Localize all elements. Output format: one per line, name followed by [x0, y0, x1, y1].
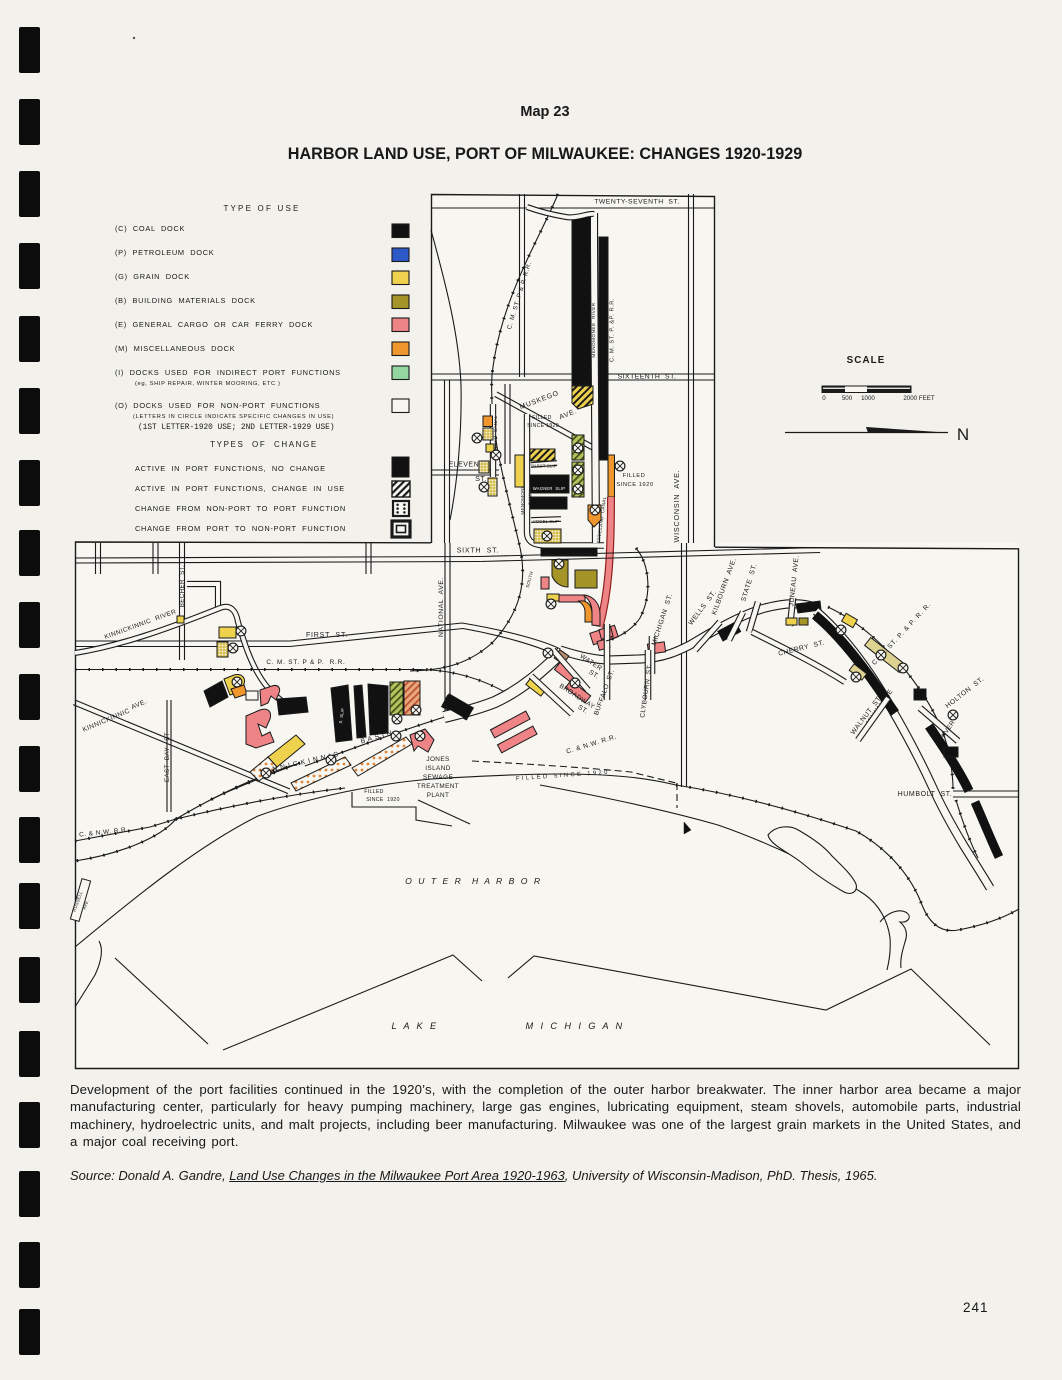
svg-text:VOGEL SLIP: VOGEL SLIP — [533, 519, 560, 524]
svg-text:(I) DOCKS USED FOR INDIREC: (I) DOCKS USED FOR INDIRECT PORT FUNCTIO… — [115, 368, 341, 377]
svg-text:PABST SLIP: PABST SLIP — [531, 464, 557, 469]
svg-text:(E) GENERAL CARGO OR CAR: (E) GENERAL CARGO OR CAR FERRY DOCK — [115, 320, 313, 329]
svg-text:(C) COAL DOCK: (C) COAL DOCK — [115, 224, 185, 233]
svg-text:ACTIVE IN PORT FUNCTIONS,: ACTIVE IN PORT FUNCTIONS, NO CHANGE — [135, 464, 326, 473]
svg-text:TREATMENT: TREATMENT — [417, 783, 459, 790]
svg-text:SINCE 1920: SINCE 1920 — [616, 482, 653, 488]
svg-text:PLANT: PLANT — [427, 792, 450, 799]
svg-text:FILLED: FILLED — [623, 473, 646, 479]
svg-text:FILLED: FILLED — [532, 415, 551, 421]
svg-text:(B) BUILDING MATERIALS DOCK: (B) BUILDING MATERIALS DOCK — [115, 296, 256, 305]
svg-text:NATIONAL AVE.: NATIONAL AVE. — [438, 577, 445, 637]
svg-text:(LETTERS IN CIRCLE INDICATE SP: (LETTERS IN CIRCLE INDICATE SPECIFIC CHA… — [133, 414, 334, 420]
svg-text:CHANGE FROM PORT TO NON-PO: CHANGE FROM PORT TO NON-PORT FUNCTION — [135, 524, 346, 533]
svg-text:WAGNER SLIP: WAGNER SLIP — [533, 486, 566, 491]
svg-text:C. M. ST. P. &P. R.R.: C. M. ST. P. &P. R.R. — [610, 298, 616, 362]
svg-text:(1ST LETTER-1920 USE; 2ND LETT: (1ST LETTER-1920 USE; 2ND LETTER-1929 US… — [138, 424, 335, 432]
svg-text:FILLED: FILLED — [364, 789, 383, 795]
svg-text:SIXTEENTH ST.: SIXTEENTH ST. — [618, 374, 677, 381]
svg-text:N: N — [957, 425, 969, 444]
svg-text:1000: 1000 — [861, 395, 875, 402]
svg-text:MENOMONEE RIVER: MENOMONEE RIVER — [591, 302, 596, 357]
svg-text:SCALE: SCALE — [847, 355, 886, 366]
svg-text:0: 0 — [822, 395, 826, 402]
svg-text:C. M. ST. P & P. R.R.: C. M. ST. P & P. R.R. — [266, 659, 345, 666]
svg-text:(O) DOCKS USED FOR NON-POR: (O) DOCKS USED FOR NON-PORT FUNCTIONS — [115, 401, 320, 410]
svg-text:SINCE 1920: SINCE 1920 — [366, 797, 400, 803]
svg-text:TYPES OF CHANGE: TYPES OF CHANGE — [210, 440, 318, 449]
svg-text:EAST BAY ST: EAST BAY ST — [164, 732, 171, 782]
svg-text:(M) MISCELLANEOUS DOCK: (M) MISCELLANEOUS DOCK — [115, 344, 235, 353]
svg-text:(G) GRAIN DOCK: (G) GRAIN DOCK — [115, 272, 190, 281]
svg-text:ACTIVE IN PORT FUNCTIONS,: ACTIVE IN PORT FUNCTIONS, CHANGE IN USE — [135, 484, 345, 493]
svg-text:ISLAND: ISLAND — [425, 765, 451, 772]
svg-text:TYPE OF USE: TYPE OF USE — [223, 204, 300, 213]
svg-text:(P) PETROLEUM DOCK: (P) PETROLEUM DOCK — [115, 248, 214, 257]
svg-text:M I C H I G A N: M I C H I G A N — [525, 1021, 624, 1031]
svg-text:HUMBOLT ST.: HUMBOLT ST. — [898, 791, 953, 798]
svg-text:SINCE 1920: SINCE 1920 — [527, 423, 559, 429]
svg-text:JONES: JONES — [426, 756, 449, 763]
svg-text:CHANGE FROM NON-PORT TO PO: CHANGE FROM NON-PORT TO PORT FUNCTION — [135, 504, 346, 513]
svg-text:SIXTH ST.: SIXTH ST. — [457, 548, 500, 555]
svg-text:O U T E R: O U T E R — [405, 876, 463, 886]
svg-text:H A R B O R: H A R B O R — [472, 876, 542, 886]
svg-text:TWENTY-SEVENTH ST.: TWENTY-SEVENTH ST. — [594, 199, 680, 206]
svg-text:FIRST ST.: FIRST ST. — [306, 632, 348, 639]
svg-text:BECHER ST.: BECHER ST. — [179, 565, 186, 608]
svg-text:(eg, SHIP REPAIR, WINTER MOORI: (eg, SHIP REPAIR, WINTER MOORING, ETC ) — [135, 381, 281, 387]
svg-text:2000 FEET: 2000 FEET — [903, 395, 935, 402]
svg-text:WISCONSIN AVE.: WISCONSIN AVE. — [672, 470, 681, 543]
svg-text:500: 500 — [842, 395, 853, 402]
svg-text:L A K E: L A K E — [391, 1021, 438, 1031]
